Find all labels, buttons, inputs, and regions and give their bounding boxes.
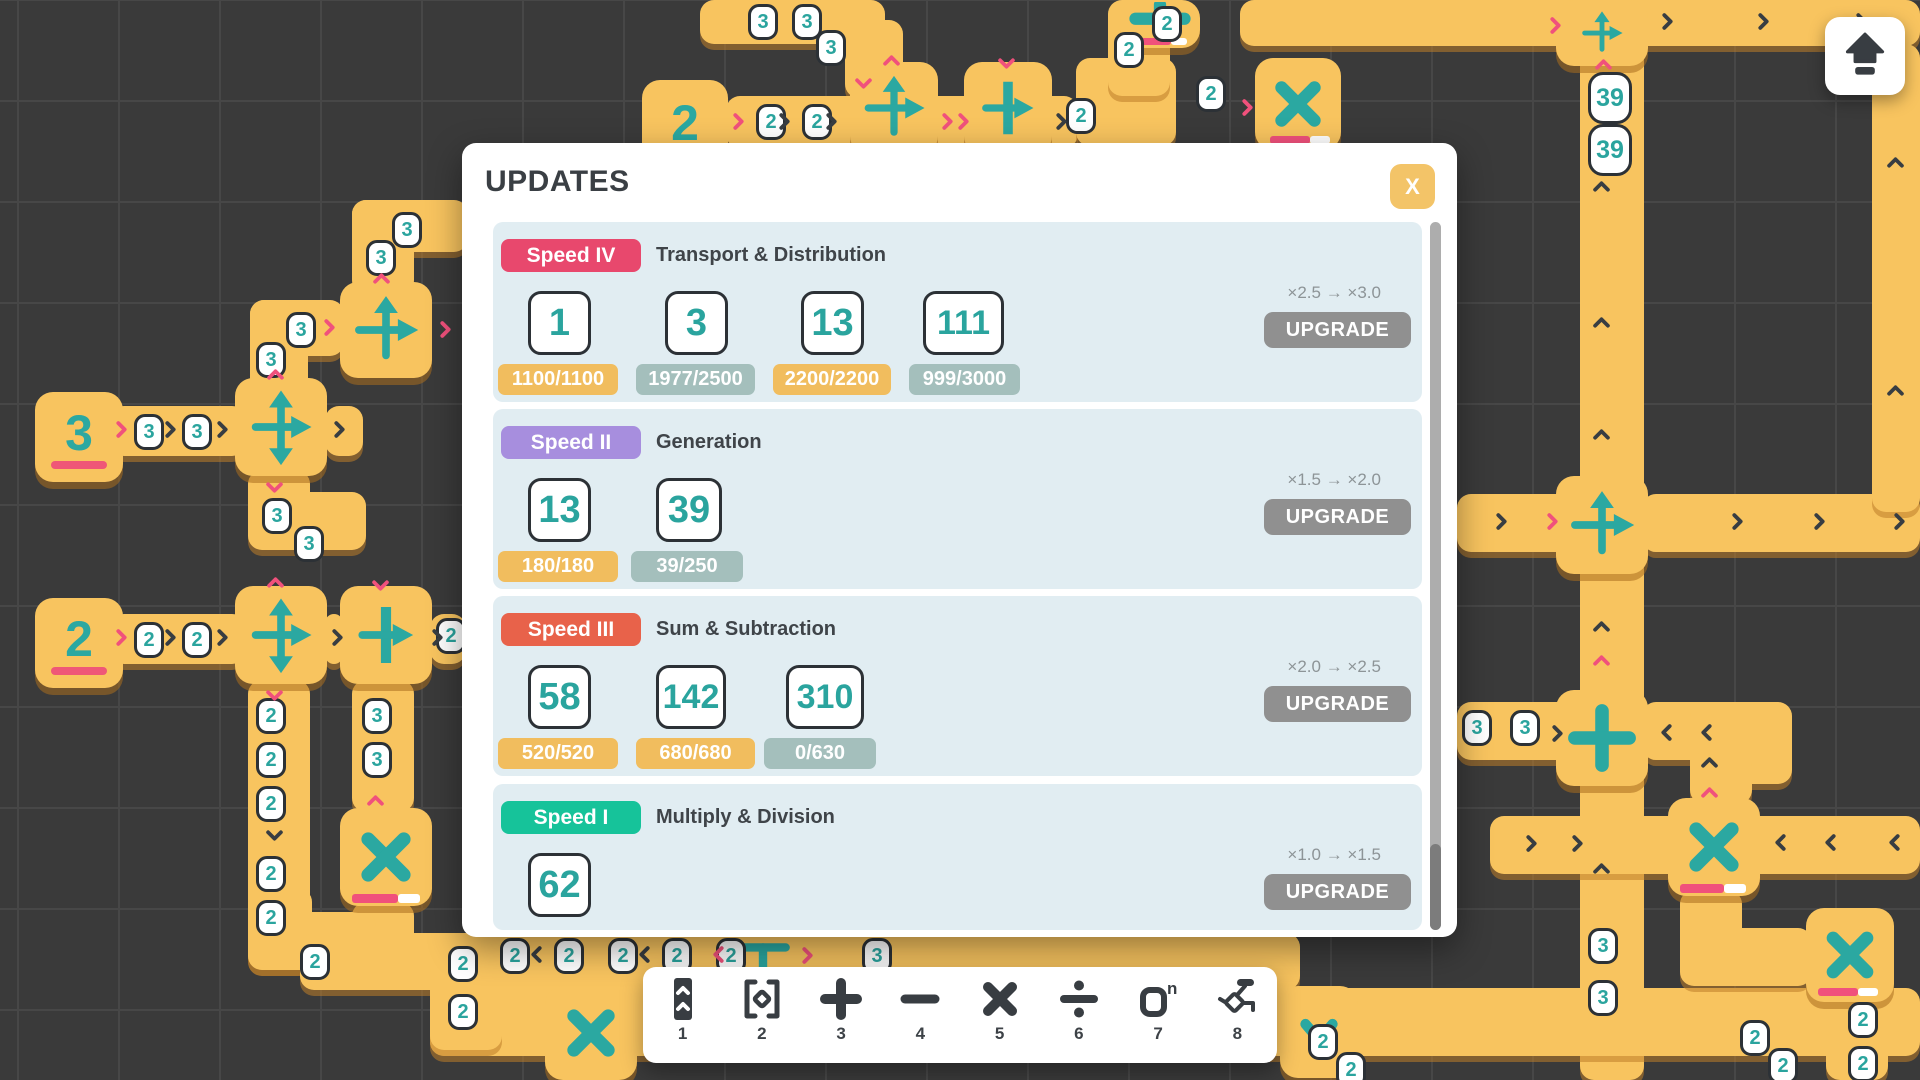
upgrade-button[interactable]: UPGRADE xyxy=(1264,312,1411,348)
upgrade-button[interactable]: UPGRADE xyxy=(1264,499,1411,535)
number-token: 2 xyxy=(1308,1024,1338,1060)
toolbar-slot-number: 4 xyxy=(916,1024,925,1044)
belt-direction-chevron-icon xyxy=(1660,12,1674,30)
toolbar-slot-7[interactable]: n7 xyxy=(1119,967,1198,1063)
extractor-icon xyxy=(740,976,784,1022)
toolbar-slot-number: 8 xyxy=(1233,1024,1242,1044)
toolbar-slot-number: 3 xyxy=(836,1024,845,1044)
divide-icon xyxy=(1057,976,1101,1022)
number-token: 2 xyxy=(1114,32,1144,68)
speed-tier-badge: Speed III xyxy=(501,613,641,646)
close-button[interactable]: X xyxy=(1390,164,1435,209)
belt-direction-chevron-icon xyxy=(266,480,284,494)
number-generator-tile[interactable]: 2 xyxy=(35,598,123,688)
belt-direction-chevron-icon xyxy=(1592,620,1610,634)
number-token: 3 xyxy=(262,498,292,534)
belt-direction-chevron-icon xyxy=(266,368,284,382)
belt-direction-chevron-icon xyxy=(1570,834,1584,852)
belt-direction-chevron-icon xyxy=(1592,862,1610,876)
merger-right-tile[interactable] xyxy=(964,62,1052,154)
belt-direction-chevron-icon xyxy=(731,112,745,130)
modal-title: UPDATES xyxy=(485,165,630,199)
number-token: 2 xyxy=(1066,98,1096,134)
upgrade-multiplier-label: ×1.0 → ×1.5 xyxy=(1093,845,1381,865)
belt-direction-chevron-icon xyxy=(1886,384,1904,398)
number-token: 3 xyxy=(286,312,316,348)
splitter-icon xyxy=(1215,976,1259,1022)
belt-direction-chevron-icon xyxy=(1730,512,1744,530)
upgrades-open-button[interactable] xyxy=(1825,17,1905,95)
machine-progress-bar xyxy=(398,894,420,903)
generator-value: 3 xyxy=(65,408,93,458)
belt-direction-chevron-icon xyxy=(163,628,177,646)
belt-direction-chevron-icon xyxy=(1700,756,1718,770)
upgrade-section-speed-iii: Speed IIISum & Subtraction58142310520/52… xyxy=(493,596,1422,776)
belt-direction-chevron-icon xyxy=(940,112,954,130)
progress-chip: 180/180 xyxy=(498,551,618,582)
belt-direction-chevron-icon xyxy=(114,420,128,438)
splitter-up-right-tile[interactable] xyxy=(340,282,432,378)
toolbar-slot-8[interactable]: 8 xyxy=(1198,967,1277,1063)
belt-direction-chevron-icon xyxy=(638,946,652,964)
number-card: 142 xyxy=(656,665,726,729)
progress-chip: 680/680 xyxy=(636,738,755,769)
number-card: 310 xyxy=(786,665,864,729)
speed-tier-badge: Speed IV xyxy=(501,239,641,272)
number-card: 13 xyxy=(528,478,591,542)
number-card: 58 xyxy=(528,665,591,729)
upgrade-multiplier-label: ×1.5 → ×2.0 xyxy=(1093,470,1381,490)
toolbar-slot-3[interactable]: 3 xyxy=(802,967,881,1063)
section-category-label: Multiply & Division xyxy=(656,806,835,829)
upgrade-button[interactable]: UPGRADE xyxy=(1264,686,1411,722)
toolbar-slot-number: 7 xyxy=(1153,1024,1162,1044)
belt-direction-chevron-icon xyxy=(266,688,284,702)
belt-direction-chevron-icon xyxy=(800,946,814,964)
toolbar-slot-number: 5 xyxy=(995,1024,1004,1044)
generator-underline xyxy=(51,461,107,469)
belt-direction-chevron-icon xyxy=(114,628,128,646)
belt-direction-chevron-icon xyxy=(824,112,838,130)
belt-direction-chevron-icon xyxy=(430,628,444,646)
belt-direction-chevron-icon xyxy=(1594,58,1612,72)
machine-progress-bar xyxy=(1680,884,1724,893)
belt-direction-chevron-icon xyxy=(530,946,544,964)
toolbar-slot-5[interactable]: 5 xyxy=(960,967,1039,1063)
belt-direction-chevron-icon xyxy=(777,112,791,130)
number-token: 2 xyxy=(448,946,478,982)
toolbar-slot-number: 6 xyxy=(1074,1024,1083,1044)
number-token: 2 xyxy=(1336,1052,1366,1080)
number-token: 3 xyxy=(366,240,396,276)
toolbar-slot-2[interactable]: 2 xyxy=(722,967,801,1063)
progress-chip: 999/3000 xyxy=(909,364,1020,395)
number-token: 2 xyxy=(256,900,286,936)
belt-direction-chevron-icon xyxy=(1660,724,1674,742)
section-category-label: Sum & Subtraction xyxy=(656,618,836,641)
belt-direction-chevron-icon xyxy=(712,946,726,964)
belt-direction-chevron-icon xyxy=(1774,834,1788,852)
machine-progress-bar xyxy=(1818,988,1858,996)
number-token: 2 xyxy=(1740,1020,1770,1056)
toolbar-slot-1[interactable]: 1 xyxy=(643,967,722,1063)
minus-icon xyxy=(898,976,942,1022)
toolbar-slot-number: 1 xyxy=(678,1024,687,1044)
section-category-label: Generation xyxy=(656,431,762,454)
number-token: 3 xyxy=(182,414,212,450)
conveyor-belt xyxy=(1872,44,1920,512)
number-token: 3 xyxy=(392,212,422,248)
number-token: 2 xyxy=(1196,76,1226,112)
belt-direction-chevron-icon xyxy=(1888,834,1902,852)
number-token: 2 xyxy=(256,698,286,734)
number-token: 39 xyxy=(1588,124,1632,176)
belt-direction-chevron-icon xyxy=(366,794,384,808)
junction-cross-tile[interactable] xyxy=(235,586,327,684)
exponent-icon: n xyxy=(1136,976,1180,1022)
progress-chip: 0/630 xyxy=(764,738,876,769)
belt-direction-chevron-icon xyxy=(1700,786,1718,800)
progress-chip: 1100/1100 xyxy=(498,364,618,395)
number-token: 3 xyxy=(748,4,778,40)
splitter-up-right-tile[interactable] xyxy=(1556,476,1648,574)
belt-direction-chevron-icon xyxy=(1592,180,1610,194)
number-token: 2 xyxy=(608,938,638,974)
belt-direction-chevron-icon xyxy=(1550,724,1564,742)
number-token: 2 xyxy=(256,786,286,822)
junction-cross-tile[interactable] xyxy=(235,378,327,476)
splitter-up-right-tile[interactable] xyxy=(1556,0,1648,66)
number-generator-tile[interactable]: 3 xyxy=(35,392,123,482)
belt-direction-chevron-icon xyxy=(1548,16,1562,34)
modal-scrollbar[interactable] xyxy=(1430,222,1441,930)
generator-underline xyxy=(51,667,107,675)
number-token: 3 xyxy=(362,698,392,734)
progress-chip: 2200/2200 xyxy=(773,364,891,395)
belt-direction-chevron-icon xyxy=(1240,98,1254,116)
belt-direction-chevron-icon xyxy=(1545,512,1559,530)
multiplier-tile[interactable] xyxy=(545,986,637,1080)
build-toolbar: 123456n78 xyxy=(643,967,1277,1063)
number-token: 2 xyxy=(1848,1046,1878,1080)
number-token: 2 xyxy=(134,622,164,658)
speed-tier-badge: Speed II xyxy=(501,426,641,459)
scrollbar-thumb[interactable] xyxy=(1430,844,1441,930)
upgrade-button[interactable]: UPGRADE xyxy=(1264,874,1411,910)
belt-direction-chevron-icon xyxy=(372,272,390,286)
upgrade-section-speed-ii: Speed IIGeneration1339180/18039/250×1.5 … xyxy=(493,409,1422,589)
number-token: 39 xyxy=(1588,72,1632,124)
belt-direction-chevron-icon xyxy=(438,320,452,338)
plus-icon xyxy=(819,976,863,1022)
number-token: 3 xyxy=(1588,980,1618,1016)
belt-direction-chevron-icon xyxy=(266,576,284,590)
belt-direction-chevron-icon xyxy=(322,318,336,336)
generator-value: 2 xyxy=(671,98,699,148)
generator-value: 2 xyxy=(65,614,93,664)
number-card: 3 xyxy=(665,291,728,355)
number-card: 111 xyxy=(923,291,1004,355)
belt-direction-chevron-icon xyxy=(998,56,1016,70)
upgrade-multiplier-label: ×2.5 → ×3.0 xyxy=(1093,283,1381,303)
belt-direction-chevron-icon xyxy=(372,578,390,592)
number-card: 39 xyxy=(656,478,722,542)
number-token: 3 xyxy=(1588,928,1618,964)
multiplier-tile[interactable] xyxy=(340,808,432,906)
belt-direction-chevron-icon xyxy=(1812,512,1826,530)
upgrade-section-speed-iv: Speed IVTransport & Distribution13131111… xyxy=(493,222,1422,402)
belt-direction-chevron-icon xyxy=(1886,156,1904,170)
belt-direction-chevron-icon xyxy=(215,628,229,646)
speed-tier-badge: Speed I xyxy=(501,801,641,834)
belt-direction-chevron-icon xyxy=(330,628,344,646)
toolbar-slot-number: 2 xyxy=(757,1024,766,1044)
conveyor-belt xyxy=(1680,928,1812,986)
number-token: 3 xyxy=(294,526,324,562)
number-token: 2 xyxy=(554,938,584,974)
upgrade-multiplier-label: ×2.0 → ×2.5 xyxy=(1093,657,1381,677)
belt-direction-chevron-icon xyxy=(1524,834,1538,852)
belt-direction-chevron-icon xyxy=(163,420,177,438)
number-token: 2 xyxy=(256,742,286,778)
belt-direction-chevron-icon xyxy=(855,76,873,90)
belt-direction-chevron-icon xyxy=(1592,654,1610,668)
game-stage: 3223333333322222233222222222232222222333… xyxy=(0,0,1920,1080)
machine-progress-bar xyxy=(352,894,398,903)
number-token: 2 xyxy=(500,938,530,974)
number-card: 13 xyxy=(801,291,864,355)
belt-direction-chevron-icon xyxy=(1494,512,1508,530)
belt-direction-chevron-icon xyxy=(215,420,229,438)
multiply-icon xyxy=(978,976,1022,1022)
number-token: 3 xyxy=(1462,710,1492,746)
machine-progress-bar xyxy=(1724,884,1746,893)
belt-icon xyxy=(661,976,705,1022)
upgrade-section-speed-i: Speed IMultiply & Division62×1.0 → ×1.5U… xyxy=(493,784,1422,930)
section-category-label: Transport & Distribution xyxy=(656,244,886,267)
progress-chip: 39/250 xyxy=(631,551,743,582)
number-token: 2 xyxy=(1848,1002,1878,1038)
number-card: 62 xyxy=(528,853,591,917)
svg-text:n: n xyxy=(1167,979,1177,998)
belt-direction-chevron-icon xyxy=(1592,428,1610,442)
machine-progress-bar xyxy=(1858,988,1878,996)
number-token: 2 xyxy=(300,944,330,980)
progress-chip: 520/520 xyxy=(498,738,618,769)
toolbar-slot-6[interactable]: 6 xyxy=(1039,967,1118,1063)
number-token: 3 xyxy=(362,742,392,778)
belt-direction-chevron-icon xyxy=(1592,316,1610,330)
belt-direction-chevron-icon xyxy=(882,54,900,68)
multiplier-tile[interactable] xyxy=(1668,798,1760,896)
progress-chip: 1977/2500 xyxy=(636,364,755,395)
number-token: 2 xyxy=(256,856,286,892)
number-card: 1 xyxy=(528,291,591,355)
belt-direction-chevron-icon xyxy=(1054,112,1068,130)
belt-direction-chevron-icon xyxy=(1824,834,1838,852)
belt-direction-chevron-icon xyxy=(1756,12,1770,30)
number-token: 2 xyxy=(1152,6,1182,42)
merger-right-tile[interactable] xyxy=(340,586,432,684)
number-token: 3 xyxy=(816,30,846,66)
updates-modal: UPDATES X Speed IVTransport & Distributi… xyxy=(462,143,1457,937)
belt-direction-chevron-icon xyxy=(332,420,346,438)
number-token: 2 xyxy=(448,994,478,1030)
belt-direction-chevron-icon xyxy=(956,112,970,130)
number-token: 3 xyxy=(1510,710,1540,746)
number-token: 2 xyxy=(1768,1048,1798,1080)
adder-tile[interactable] xyxy=(1556,690,1648,786)
belt-direction-chevron-icon xyxy=(1700,724,1714,742)
belt-direction-chevron-icon xyxy=(266,828,284,842)
upgrade-arrow-icon xyxy=(1842,31,1888,82)
belt-direction-chevron-icon xyxy=(1892,512,1906,530)
toolbar-slot-4[interactable]: 4 xyxy=(881,967,960,1063)
number-token: 3 xyxy=(134,414,164,450)
number-token: 2 xyxy=(182,622,212,658)
